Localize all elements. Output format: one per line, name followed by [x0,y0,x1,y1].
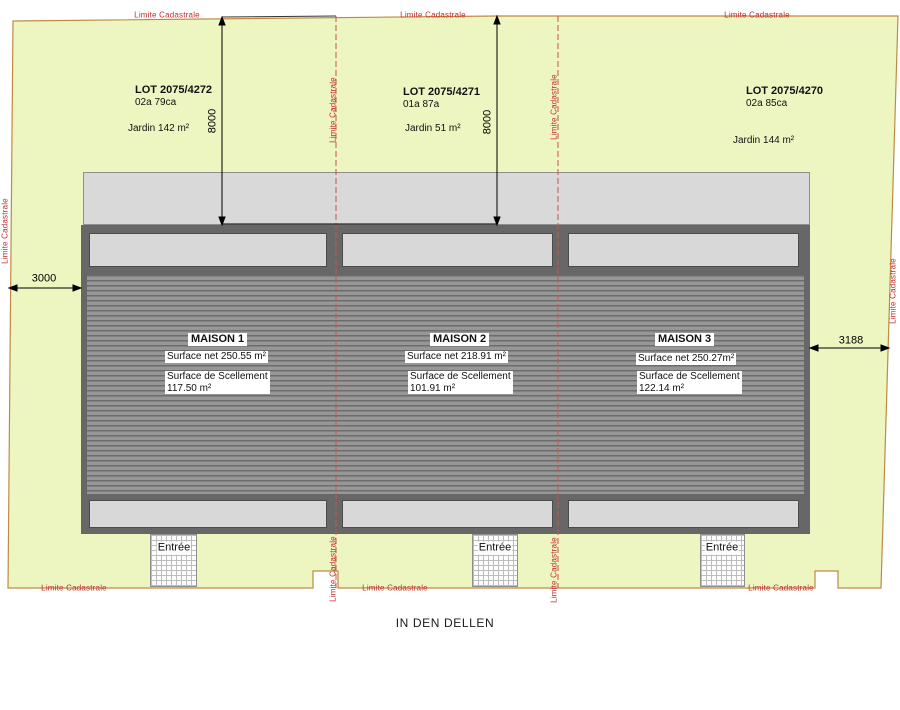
lot3-area: 02a 85ca [746,98,787,110]
entrance-label-3: Entrée [705,542,739,555]
limite-cadastrale-label-left: Limite Cadastrale [0,198,9,264]
limite-cadastrale-label-bottom-3: Limite Cadastrale [748,583,814,592]
street-name: IN DEN DELLEN [396,617,495,631]
site-plan: Limite Cadastrale Limite Cadastrale Limi… [0,0,900,710]
dim-label-3000: 3000 [32,273,56,286]
maison3-title: MAISON 3 [655,333,714,346]
lot2-garden: Jardin 51 m² [405,123,461,135]
limite-cadastrale-label-top-2: Limite Cadastrale [400,10,466,19]
limite-cadastrale-label-right: Limite Cadastrale [888,258,897,324]
limite-cadastrale-label-lot1-bottom: Limite Cadastrale [328,536,337,602]
lot1-area: 02a 79ca [135,97,176,109]
limite-cadastrale-label-bottom-1: Limite Cadastrale [41,583,107,592]
dim-label-8000-left: 8000 [207,109,220,133]
limite-cadastrale-label-lot2-top: Limite Cadastrale [549,74,558,140]
maison1-title: MAISON 1 [188,333,247,346]
maison1-surface-sealing: Surface de Scellement 117.50 m² [165,371,270,394]
lot2-name: LOT 2075/4271 [403,86,480,99]
limite-cadastrale-label-top-3: Limite Cadastrale [724,10,790,19]
lot2-area: 01a 87a [403,99,439,111]
limite-cadastrale-label-lot2-bottom: Limite Cadastrale [549,537,558,603]
dimension-8000-left [219,17,225,225]
maison1-surface-net: Surface net 250.55 m² [165,351,268,363]
lot3-name: LOT 2075/4270 [746,85,823,98]
limite-cadastrale-label-top-1: Limite Cadastrale [134,10,200,19]
maison2-surface-net: Surface net 218.91 m² [405,351,508,363]
maison3-surface-net: Surface net 250.27m² [636,353,736,365]
dim-top-link-line [222,16,336,17]
lot1-garden: Jardin 142 m² [128,123,189,135]
entrance-label-2: Entrée [478,542,512,555]
dimension-8000-mid [494,16,500,225]
limite-cadastrale-label-lot1-top: Limite Cadastrale [328,77,337,143]
dim-label-3188: 3188 [839,335,863,348]
maison2-surface-sealing: Surface de Scellement 101.91 m² [408,371,513,394]
dim-label-8000-mid: 8000 [482,110,495,134]
lot1-name: LOT 2075/4272 [135,84,212,97]
dimension-3000 [9,285,81,291]
maison3-surface-sealing: Surface de Scellement 122.14 m² [637,371,742,394]
limite-cadastrale-label-bottom-2: Limite Cadastrale [362,583,428,592]
lot3-garden: Jardin 144 m² [733,135,794,147]
maison2-title: MAISON 2 [430,333,489,346]
entrance-label-1: Entrée [157,542,191,555]
